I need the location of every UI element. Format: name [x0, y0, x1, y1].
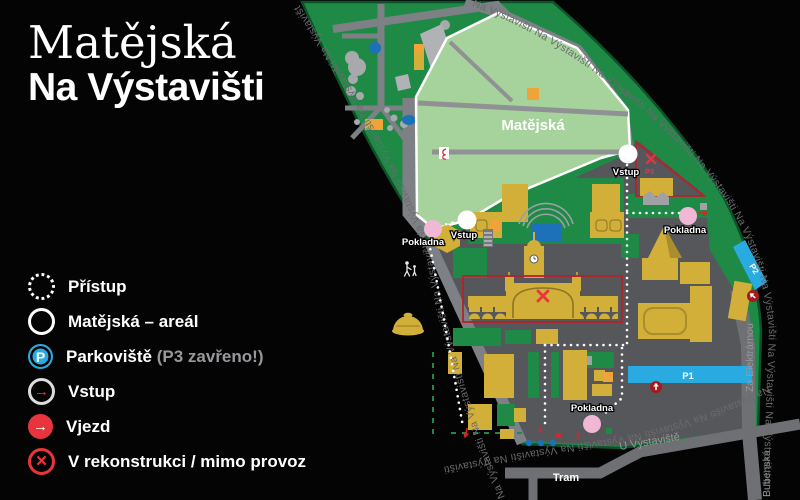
pokladna1-label: Pokladna [402, 237, 445, 248]
pokladna2-label: Pokladna [664, 225, 707, 236]
legend-label: V rekonstrukci / mimo provoz [68, 452, 306, 472]
dotted-circle-icon [28, 273, 55, 300]
area-building [527, 88, 539, 100]
stall-red [556, 433, 561, 438]
entry-arrow-icon: → [28, 378, 55, 405]
title-line1: Matějská [28, 18, 264, 68]
street-tram: Tram [553, 472, 580, 484]
fountain-pool [531, 224, 561, 241]
street-za-elektrarnou: Za Elektrárnou [744, 323, 756, 392]
vstup2-label: Vstup [613, 167, 640, 178]
closed-x-icon: × [28, 448, 55, 475]
pokladna-marker-2 [679, 207, 697, 225]
legend-label: Vjezd [66, 417, 110, 437]
pokladna-marker-3 [583, 415, 601, 433]
pokladna3-label: Pokladna [571, 403, 614, 414]
vstup-marker-1 [458, 211, 477, 230]
poster: Matějská [0, 0, 800, 500]
ring-icon [28, 308, 55, 335]
legend: Přístup Matějská – areál P Parkoviště (P… [28, 273, 306, 475]
stairs-icon [483, 229, 493, 247]
legend-item-parkoviste: P Parkoviště (P3 zavřeno!) [28, 343, 306, 370]
legend-label: Přístup [68, 277, 127, 297]
legend-item-vstup: → Vstup [28, 378, 306, 405]
drive-in-arrow-icon: → [28, 414, 53, 439]
parking-icon: P [28, 344, 53, 369]
vstup1-label: Vstup [451, 230, 478, 241]
planetarium-icon [392, 313, 424, 336]
p3-label: P3 [645, 167, 654, 176]
stall-orange [603, 372, 613, 382]
title-line2: Na Výstavišti [28, 68, 264, 107]
p1-label: P1 [682, 371, 694, 382]
legend-label-note: (P3 zavřeno!) [157, 347, 264, 366]
tram-stop-dots [526, 440, 556, 446]
poster-title: Matějská Na Výstavišti [28, 18, 264, 107]
pokladna-marker-1 [424, 220, 442, 238]
legend-item-pristup: Přístup [28, 273, 306, 300]
legend-item-rekonstrukce: × V rekonstrukci / mimo provoz [28, 448, 306, 475]
pedestrian-icon [405, 261, 417, 276]
legend-label: Matějská – areál [68, 312, 198, 332]
legend-label: Vstup [68, 382, 115, 402]
legend-item-areal: Matějská – areál [28, 308, 306, 335]
legend-label-text: Parkoviště [66, 347, 152, 366]
ticket-kiosk-icon [439, 147, 449, 159]
legend-label: Parkoviště (P3 zavřeno!) [66, 347, 263, 367]
matejska-area-label: Matějská [501, 117, 565, 134]
legend-item-vjezd: → Vjezd [28, 413, 306, 440]
vjezd-icon-p1 [650, 381, 662, 393]
vstup-marker-2 [619, 145, 638, 164]
